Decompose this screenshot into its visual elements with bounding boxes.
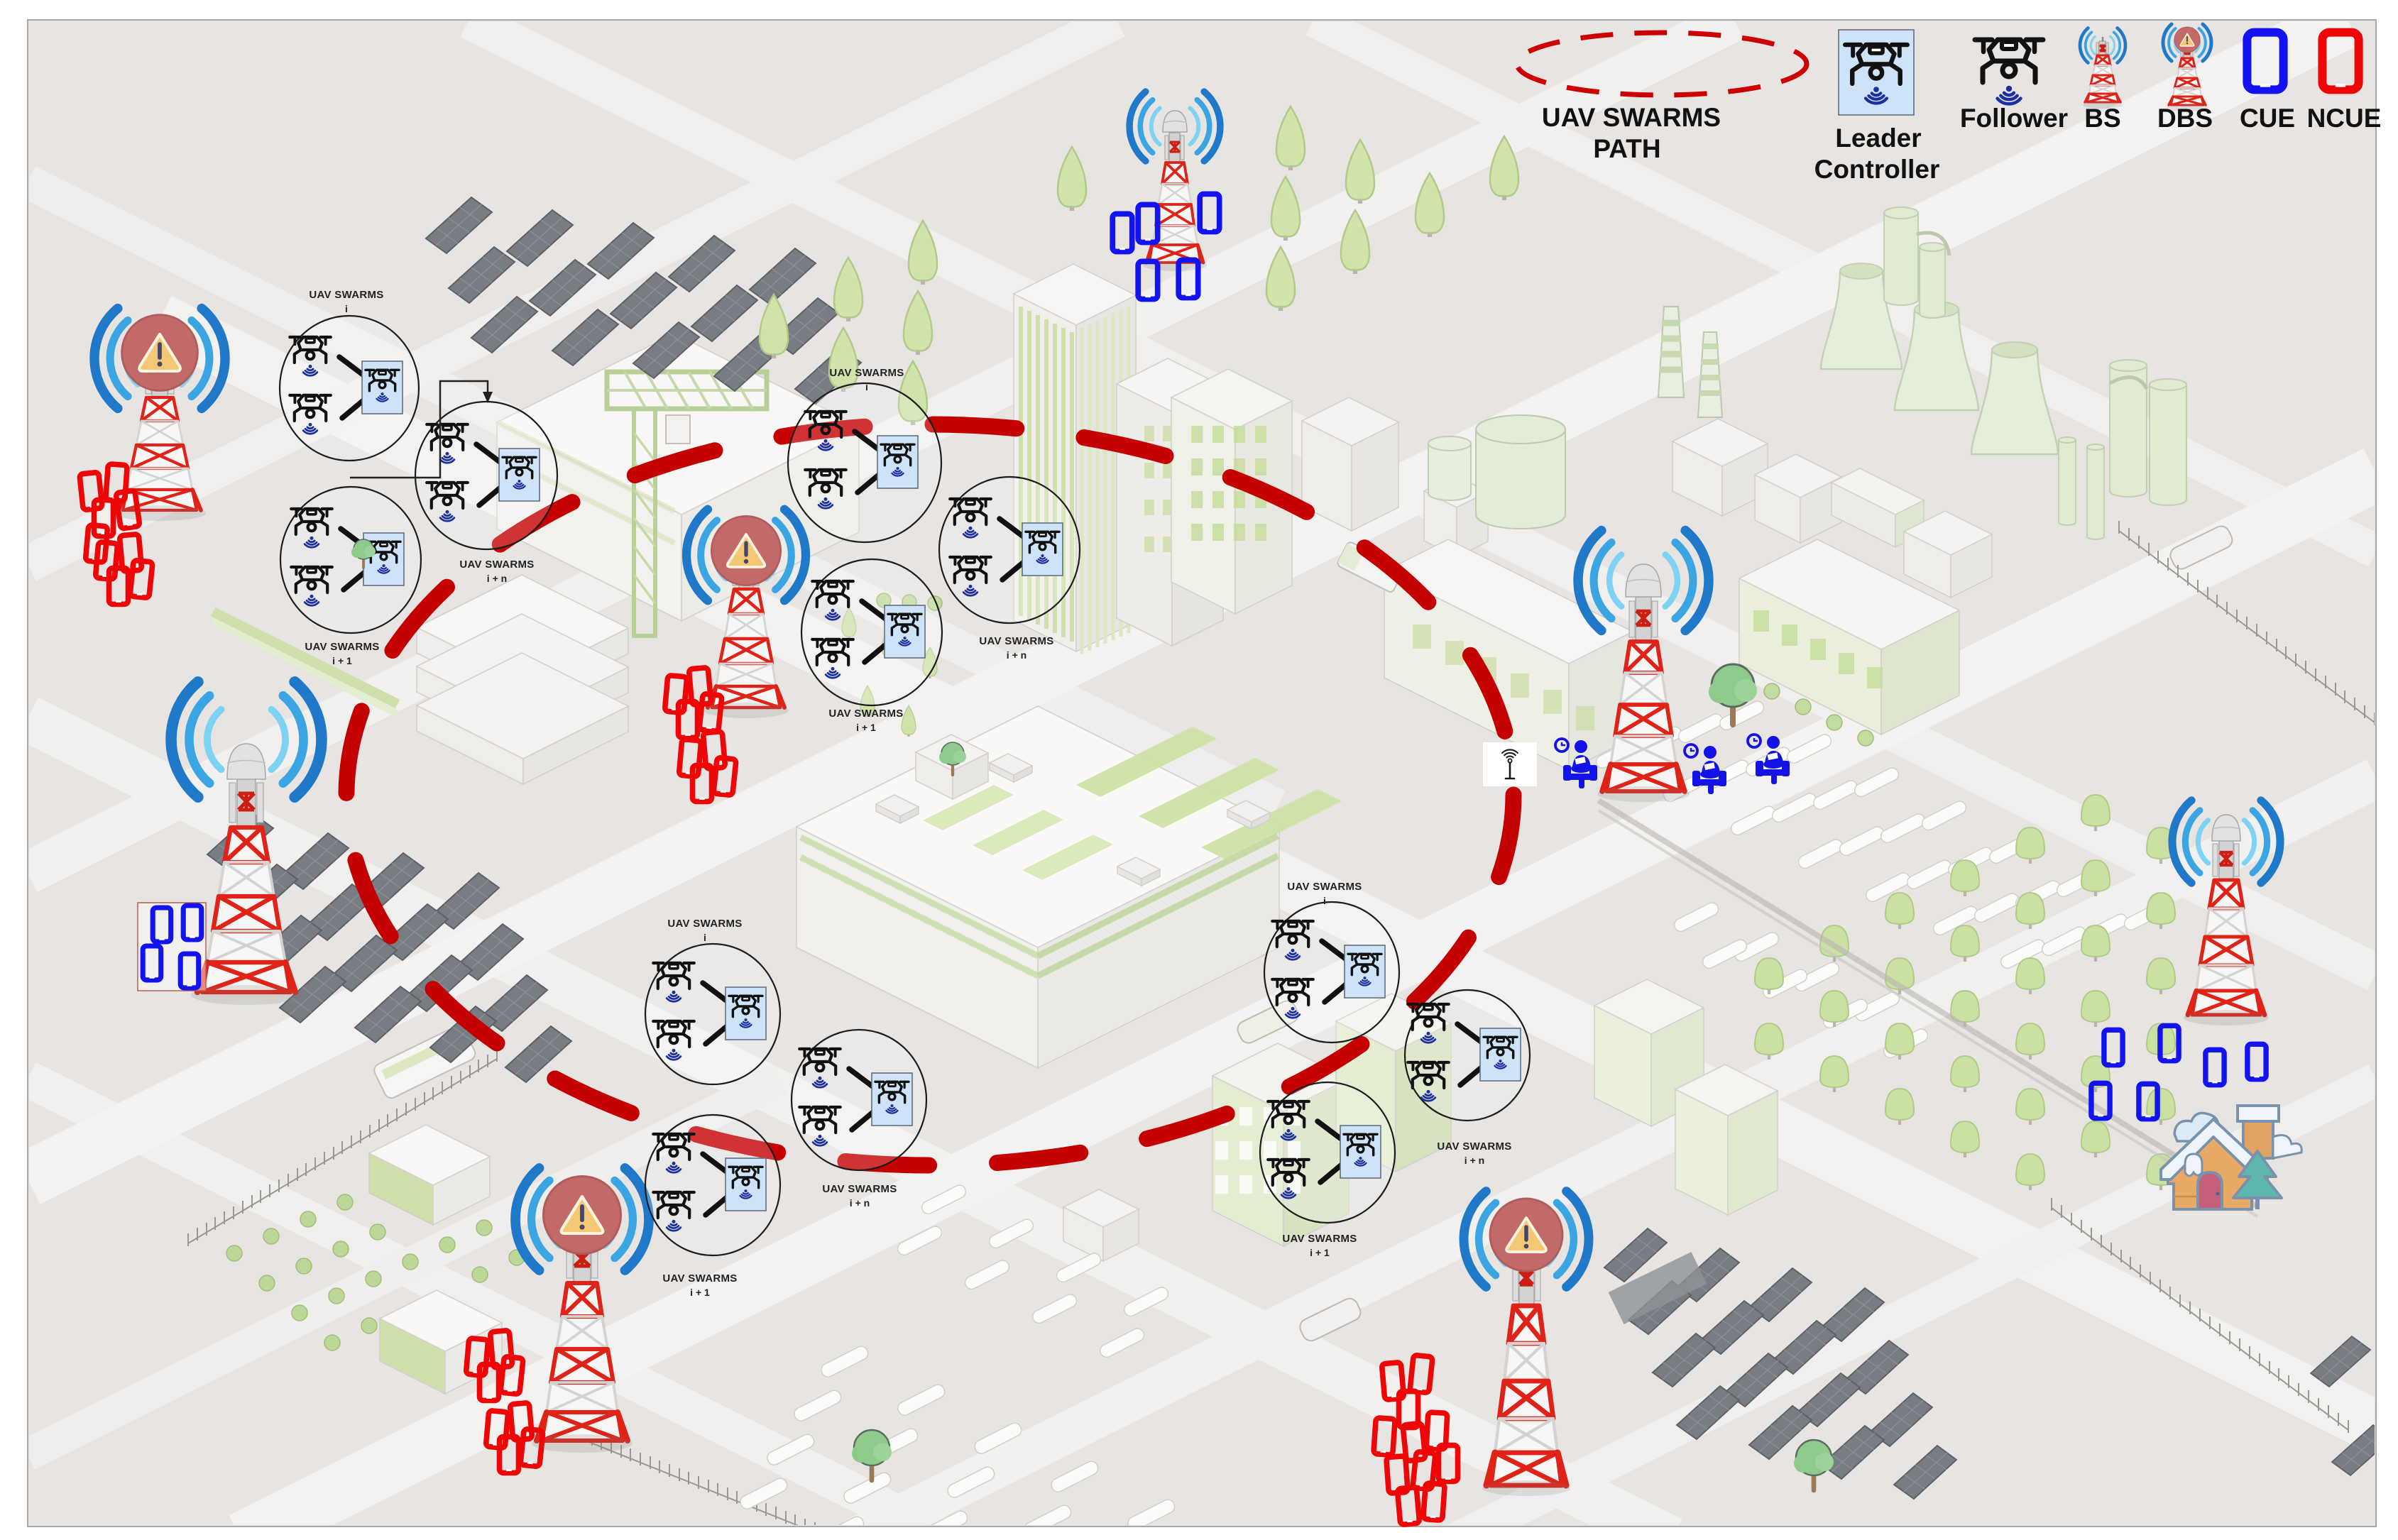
svg-text:Controller: Controller [1814, 155, 1940, 184]
svg-text:UAV SWARMS: UAV SWARMS [459, 559, 534, 571]
svg-text:DBS: DBS [2157, 104, 2213, 133]
svg-text:i + n: i + n [487, 573, 507, 584]
svg-text:UAV SWARMS: UAV SWARMS [829, 367, 904, 379]
svg-text:UAV SWARMS: UAV SWARMS [667, 918, 742, 930]
svg-text:UAV SWARMS: UAV SWARMS [1287, 881, 1362, 893]
svg-text:UAV SWARMS: UAV SWARMS [1542, 103, 1721, 132]
svg-text:i + n: i + n [1464, 1155, 1484, 1166]
svg-text:Follower: Follower [1960, 104, 2068, 133]
svg-text:UAV SWARMS: UAV SWARMS [979, 635, 1053, 647]
svg-text:i + 1: i + 1 [1310, 1247, 1330, 1258]
svg-text:i + 1: i + 1 [690, 1287, 710, 1298]
svg-text:Leader: Leader [1835, 123, 1921, 153]
svg-text:UAV SWARMS: UAV SWARMS [822, 1183, 897, 1195]
svg-text:i + n: i + n [1007, 649, 1026, 661]
svg-text:UAV SWARMS: UAV SWARMS [309, 289, 383, 301]
svg-text:UAV SWARMS: UAV SWARMS [662, 1272, 737, 1285]
svg-text:i: i [865, 381, 868, 392]
svg-text:UAV SWARMS: UAV SWARMS [828, 708, 903, 720]
svg-text:CUE: CUE [2240, 104, 2295, 133]
svg-text:i: i [345, 303, 348, 314]
svg-text:BS: BS [2084, 104, 2120, 133]
svg-text:i + n: i + n [850, 1197, 870, 1209]
svg-text:i: i [1323, 895, 1326, 906]
svg-text:i: i [703, 932, 706, 943]
svg-text:UAV SWARMS: UAV SWARMS [1282, 1233, 1357, 1245]
svg-text:i + 1: i + 1 [856, 722, 876, 733]
svg-text:UAV SWARMS: UAV SWARMS [1437, 1140, 1511, 1153]
svg-text:NCUE: NCUE [2307, 104, 2382, 133]
svg-text:i + 1: i + 1 [332, 655, 352, 666]
svg-text:PATH: PATH [1593, 134, 1660, 163]
svg-text:UAV SWARMS: UAV SWARMS [305, 641, 379, 653]
